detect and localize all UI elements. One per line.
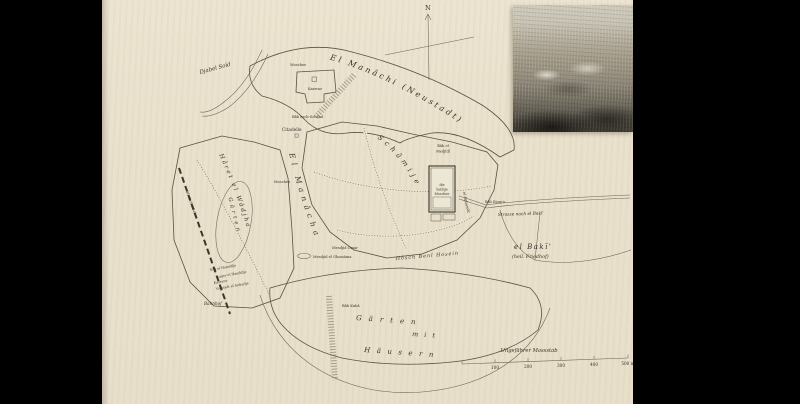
label-manachi-suburb: El Manâchi (Neustadt) xyxy=(328,52,465,125)
scanned-book-page: { "colors": { "page_bg": "#e9e1cc", "ink… xyxy=(0,0,800,404)
label-bab-kuba: Bâb Kubâ xyxy=(342,304,360,308)
label-mesdjid-omar: Mesdjid Omar xyxy=(332,246,358,250)
scale-tick-400: 400 xyxy=(590,362,598,367)
label-hosch-beni-hosein: Hôsch Benî Hosein xyxy=(395,249,460,262)
label-baki-subtitle: (heil. Friedhof) xyxy=(512,253,549,260)
label-suq-hamidije: Sûq el Hamîdîje xyxy=(209,263,236,272)
label-bab-djuma: Bâb Djum'a xyxy=(485,200,505,204)
label-holy-mosque-2: heilige xyxy=(436,188,447,192)
scale-tick-300: 300 xyxy=(557,363,565,368)
label-lager-hamidije: Lager el Hamîdîje xyxy=(216,270,246,279)
label-aghawat: el Aghawât xyxy=(462,191,471,214)
label-garten-mit-haeusern-2: mit xyxy=(412,330,441,340)
compass-rose: N xyxy=(385,4,474,80)
scale-tick-200: 200 xyxy=(524,364,532,369)
northeast-city-block xyxy=(302,122,498,258)
barracks-square-symbol xyxy=(312,77,317,82)
label-kaserne: Kaserne xyxy=(308,87,322,91)
label-bahnhof: Bahnhof xyxy=(203,301,223,306)
label-bab-medjidi-1: Bâb el xyxy=(437,144,449,148)
label-baki-cemetery: el Bakī' xyxy=(514,243,552,251)
label-strasse-baki: Strasse nach el Bakī' xyxy=(498,211,544,218)
label-moschee-strip: Moschee xyxy=(274,180,290,184)
letterbox-right xyxy=(633,0,800,404)
label-schamije-quarter: Schâmije xyxy=(376,133,423,188)
road-band-south xyxy=(329,296,335,380)
label-kaserne-south: Kaserne xyxy=(213,279,227,285)
ghomama-mosque-symbol xyxy=(298,253,311,258)
label-holy-mosque-3: Moschee xyxy=(435,192,450,196)
label-moschee-north: Moschee xyxy=(290,63,306,67)
railway-line xyxy=(179,168,230,314)
map-page: N Ungefährer Massstab 100 200 300 400 50… xyxy=(102,0,633,404)
citadel-square-symbol xyxy=(295,134,298,137)
baki-roads xyxy=(459,195,631,262)
label-djabel-soid: Djabel Soïd xyxy=(198,62,232,76)
label-bab-schami: Bâb esch-Schâmî xyxy=(292,115,324,119)
label-bab-medjidi-2: Medjîdî xyxy=(436,150,451,154)
label-garten-mit-haeusern-3: Häusern xyxy=(363,346,440,359)
city-panorama-photo-inset xyxy=(513,5,633,132)
label-holy-mosque-1: die xyxy=(439,183,444,187)
scale-tick-500m: 500 m xyxy=(621,361,633,366)
wadi-lines xyxy=(200,50,268,116)
label-hedschasbahn: Hedschasbahn xyxy=(185,190,198,218)
label-garten-mit-haeusern-1: Gärten xyxy=(356,314,423,327)
letterbox-left xyxy=(0,0,102,404)
label-manacha-esplanade: El Manâcha xyxy=(287,151,323,241)
label-mesdjid-ghomama: Mesdjid el Ghomâma xyxy=(313,255,352,259)
compass-north-label: N xyxy=(425,4,431,12)
scale-title: Ungefährer Massstab xyxy=(500,348,557,354)
south-gardens-area xyxy=(260,268,550,393)
scale-tick-100: 100 xyxy=(491,365,499,370)
scale-bar: Ungefährer Massstab 100 200 300 400 500 … xyxy=(462,348,633,370)
label-citadelle: Citadelle xyxy=(282,128,302,133)
